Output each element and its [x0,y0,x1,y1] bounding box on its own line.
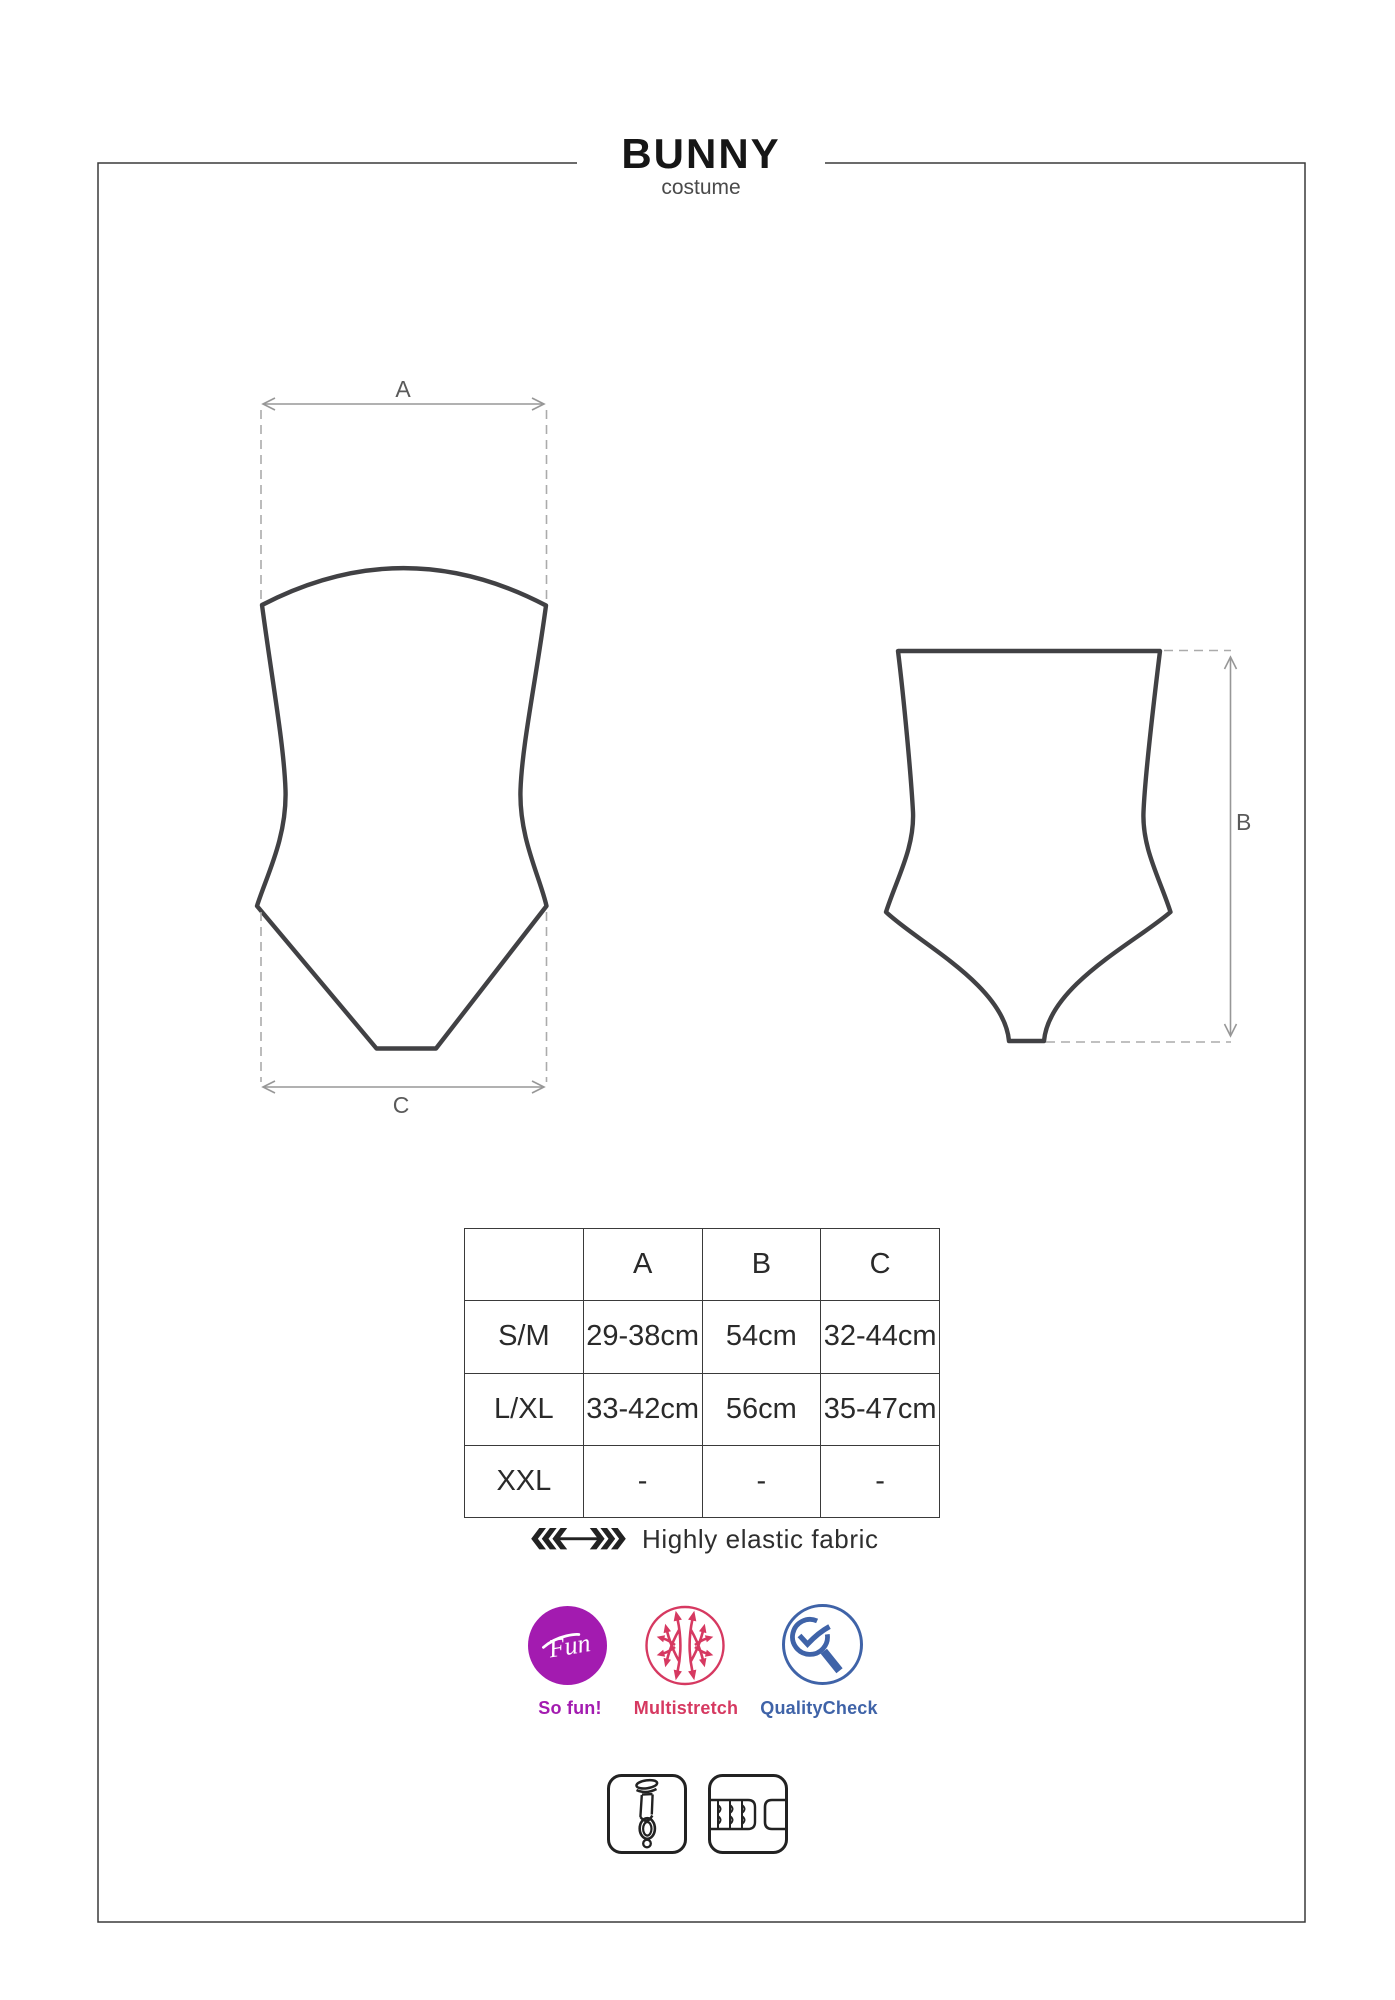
svg-text:C: C [393,1092,410,1118]
svg-text:B: B [1236,809,1251,835]
svg-text:A: A [395,376,411,402]
